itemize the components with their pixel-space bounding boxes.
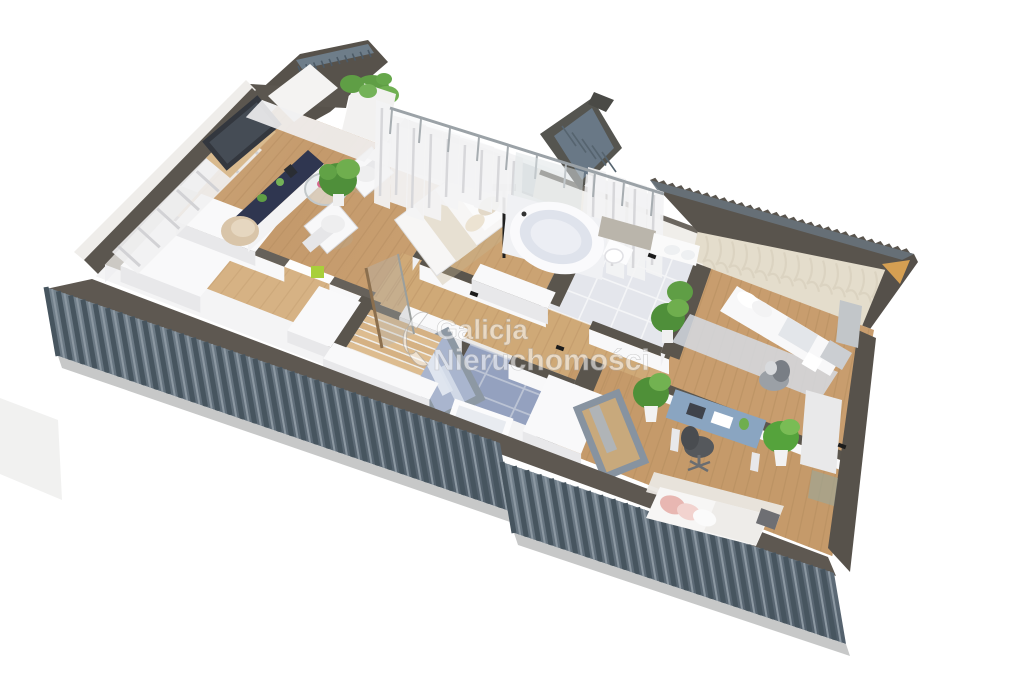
svg-text:Galicja: Galicja: [436, 314, 528, 345]
svg-text:Nieruchomości: Nieruchomości: [433, 344, 650, 377]
